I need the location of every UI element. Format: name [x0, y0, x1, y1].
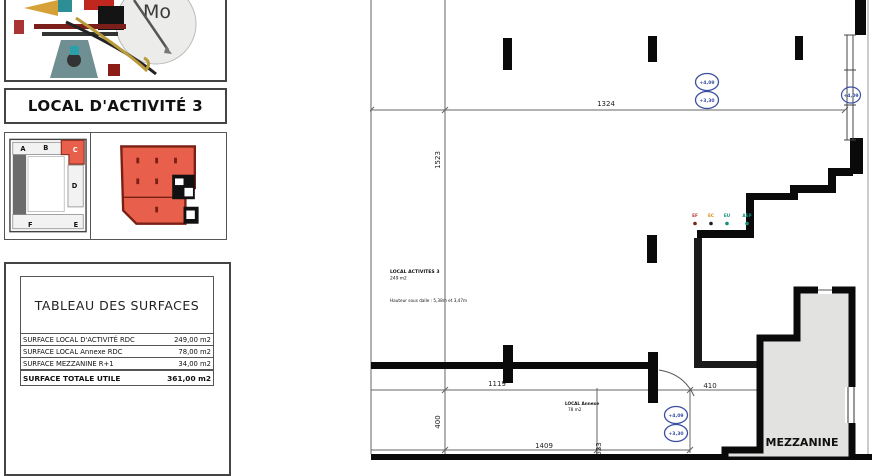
annexe-area: 78 m2: [568, 407, 582, 412]
surface-table-title: TABLEAU DES SURFACES: [21, 277, 213, 334]
unit-b-label: B: [43, 144, 48, 152]
level-marker-lower: +3,30: [665, 425, 688, 442]
svg-text:+4,09: +4,09: [668, 413, 683, 419]
unit-f-label: F: [28, 221, 33, 229]
mezzanine-block: MEZZANINE: [725, 285, 857, 460]
row-value: 78,00 m2: [178, 348, 211, 356]
logo-trapezoid-dot: [67, 53, 81, 67]
level-marker-lower: +3,30: [696, 92, 719, 109]
site-plan-thumbnail: A B C D E F: [9, 137, 87, 235]
svg-text:EU: EU: [724, 213, 731, 218]
utility-ec: EC: [708, 213, 714, 225]
floor-plan: 1324 1523 1119 400 1409 623 410: [370, 0, 872, 460]
logo-teal-dot: [70, 46, 79, 55]
sheet-title: LOCAL D'ACTIVITÉ 3: [4, 88, 227, 124]
pillar: [503, 38, 512, 70]
svg-text:+3,30: +3,30: [668, 431, 683, 437]
svg-text:+4,09: +4,09: [843, 93, 858, 99]
dim-top: 1324: [597, 100, 615, 108]
dim-annexe-left: 400: [434, 415, 442, 428]
utility-markers: EF EC EU AEP: [692, 213, 751, 225]
table-row: SURFACE MEZZANINE R+1 34,00 m2: [21, 358, 213, 370]
mezzanine-label: MEZZANINE: [766, 436, 839, 449]
unit-e-label: E: [73, 221, 78, 229]
row-label: SURFACE LOCAL Annexe RDC: [23, 348, 122, 356]
dim-bottom: 1409: [535, 442, 553, 450]
surface-table-box: TABLEAU DES SURFACES SURFACE LOCAL D'ACT…: [4, 262, 231, 476]
room-area: 249 m2: [390, 276, 407, 282]
level-marker-upper: +4,09: [696, 74, 719, 91]
unit-a-label: A: [20, 145, 26, 153]
row-value: 249,00 m2: [174, 336, 211, 344]
door-swing-arc: [659, 370, 694, 396]
row-label: SURFACE LOCAL D'ACTIVITÉ RDC: [23, 336, 135, 344]
utility-eu: EU: [724, 213, 731, 225]
logo-dark-red-square: [108, 64, 120, 76]
utility-ef: EF: [692, 213, 698, 225]
room-labels: LOCAL ACTIVITES 3 249 m2 Hauteur sous da…: [390, 269, 599, 412]
logo-teal-square: [58, 0, 72, 12]
annexe-name: LOCAL Annexe: [565, 401, 599, 406]
logo-bar-2: [42, 32, 118, 36]
svg-text:EF: EF: [692, 213, 698, 218]
unit-c-label: C: [72, 146, 77, 154]
logo-box: Mo: [4, 0, 227, 82]
table-total-row: SURFACE TOTALE UTILE 361,00 m2: [21, 370, 213, 385]
row-label: SURFACE MEZZANINE R+1: [23, 360, 114, 368]
table-row: SURFACE LOCAL Annexe RDC 78,00 m2: [21, 346, 213, 358]
logo-figure: [14, 20, 24, 34]
surface-table: TABLEAU DES SURFACES SURFACE LOCAL D'ACT…: [20, 276, 214, 386]
pillar: [648, 352, 658, 403]
total-value: 361,00 m2: [167, 374, 211, 383]
total-label: SURFACE TOTALE UTILE: [23, 374, 120, 383]
dim-door: 410: [703, 382, 716, 390]
site-key-plan: A B C D E F: [5, 133, 91, 239]
mezzanine-window: [845, 387, 857, 423]
svg-text:EC: EC: [708, 213, 714, 218]
level-marker-window: +4,09: [842, 87, 861, 103]
dim-small-right: 623: [595, 442, 603, 455]
room-name: LOCAL ACTIVITES 3: [390, 269, 440, 275]
pillar: [795, 36, 803, 60]
row-value: 34,00 m2: [178, 360, 211, 368]
unit-shape-thumbnail: [93, 137, 225, 235]
logo-artwork: Mo: [6, 0, 225, 80]
svg-text:AEP: AEP: [742, 213, 751, 218]
unit-key-plan: [91, 133, 226, 239]
unit-d-label: D: [71, 182, 77, 190]
key-plans: A B C D E F: [4, 132, 227, 240]
svg-text:+3,30: +3,30: [699, 98, 714, 104]
logo-arrow-icon: [24, 0, 58, 16]
pillar: [648, 36, 657, 62]
room-height-note: Hauteur sous dalle : 5,38m et 3,47m: [390, 298, 467, 303]
level-marker-upper: +4,09: [665, 407, 688, 424]
table-row: SURFACE LOCAL D'ACTIVITÉ RDC 249,00 m2: [21, 334, 213, 346]
dim-left: 1523: [434, 151, 442, 169]
svg-text:+4,09: +4,09: [699, 80, 714, 86]
pillar: [647, 235, 657, 263]
sheet-title-label: LOCAL D'ACTIVITÉ 3: [28, 97, 203, 115]
